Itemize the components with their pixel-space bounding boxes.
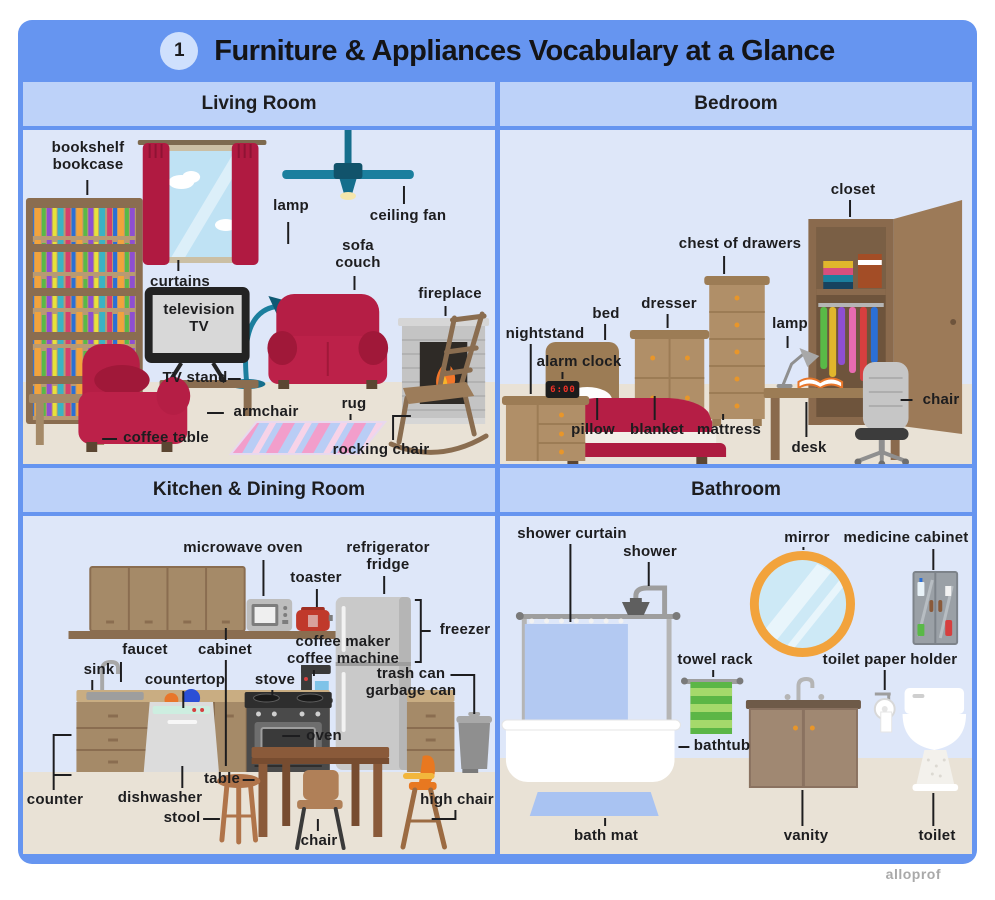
- label-nightstand: nightstand: [506, 326, 585, 343]
- label-rug: rug: [342, 396, 367, 413]
- label-vanity: vanity: [784, 828, 829, 845]
- label-freezer: freezer: [440, 622, 491, 639]
- page-title: Furniture & Appliances Vocabulary at a G…: [214, 35, 835, 68]
- label-curtains: curtains: [150, 274, 210, 291]
- label-mirror: mirror: [784, 530, 829, 547]
- label-sink: sink: [84, 662, 115, 679]
- label-bookshelf-bookcase: bookshelf bookcase: [52, 140, 125, 174]
- label-lamp: lamp: [273, 198, 309, 215]
- label-toilet: toilet: [918, 828, 955, 845]
- title-bar: 1 Furniture & Appliances Vocabulary at a…: [18, 20, 977, 82]
- label-oven: oven: [306, 728, 342, 745]
- label-pillow: pillow: [571, 422, 615, 439]
- number-badge: 1: [160, 32, 198, 70]
- label-trash-can: trash can garbage can: [366, 666, 457, 700]
- label-alarm-clock: alarm clock: [537, 354, 622, 371]
- label-bathtub: bathtub: [694, 738, 750, 755]
- label-blanket: blanket: [630, 422, 684, 439]
- label-dresser: dresser: [641, 296, 697, 313]
- label-chair: chair: [923, 392, 960, 409]
- living-room-panel: bookshelf bookcasecurtainslampceiling fa…: [23, 130, 495, 464]
- bathroom-panel: shower curtainshowermirrormedicine cabin…: [500, 516, 972, 854]
- rooms-grid: Living Room Bedroom: [23, 82, 972, 854]
- label-desk: desk: [792, 440, 827, 457]
- label-bed: bed: [592, 306, 619, 323]
- label-sofa-couch: sofa couch: [335, 238, 380, 272]
- section-header-kitchen: Kitchen & Dining Room: [23, 468, 495, 512]
- section-header-bathroom: Bathroom: [500, 468, 972, 512]
- label-refrigerator-fridge: refrigerator fridge: [346, 540, 429, 574]
- section-header-living-room: Living Room: [23, 82, 495, 126]
- alloprof-logo: alloprof: [886, 866, 941, 882]
- label-lamp: lamp: [772, 316, 808, 333]
- label-chest-of-drawers: chest of drawers: [679, 236, 801, 253]
- label-toaster: toaster: [290, 570, 341, 587]
- label-stove: stove: [255, 672, 295, 689]
- label-fireplace: fireplace: [418, 286, 482, 303]
- label-mattress: mattress: [697, 422, 761, 439]
- alarm-clock-time: 6:00: [550, 385, 576, 395]
- vocab-card: 1 Furniture & Appliances Vocabulary at a…: [18, 20, 977, 864]
- label-faucet: faucet: [122, 642, 167, 659]
- label-rocking-chair: rocking chair: [333, 442, 430, 459]
- label-counter: counter: [27, 792, 83, 809]
- label-shower: shower: [623, 544, 677, 561]
- living-room-labels: bookshelf bookcasecurtainslampceiling fa…: [23, 130, 495, 464]
- label-armchair: armchair: [234, 404, 299, 421]
- label-tv-stand: TV stand: [163, 370, 228, 387]
- label-coffee-table: coffee table: [123, 430, 209, 447]
- label-countertop: countertop: [145, 672, 225, 689]
- label-coffee-maker: coffee maker coffee machine: [287, 634, 399, 668]
- bathroom-labels: shower curtainshowermirrormedicine cabin…: [500, 516, 972, 854]
- bedroom-panel: closetchest of drawersdresserbednightsta…: [500, 130, 972, 464]
- label-microwave-oven: microwave oven: [183, 540, 303, 557]
- label-medicine-cabinet: medicine cabinet: [844, 530, 969, 547]
- section-header-bedroom: Bedroom: [500, 82, 972, 126]
- label-bath-mat: bath mat: [574, 828, 638, 845]
- label-television-tv: television TV: [163, 302, 234, 336]
- bedroom-labels: closetchest of drawersdresserbednightsta…: [500, 130, 972, 464]
- kitchen-labels: microwave oventoasterrefrigerator fridge…: [23, 516, 495, 854]
- label-shower-curtain: shower curtain: [517, 526, 627, 543]
- label-dishwasher: dishwasher: [118, 790, 203, 807]
- kitchen-panel: microwave oventoasterrefrigerator fridge…: [23, 516, 495, 854]
- label-chair: chair: [301, 833, 338, 850]
- label-cabinet: cabinet: [198, 642, 252, 659]
- label-stool: stool: [164, 810, 201, 827]
- label-table: table: [204, 771, 240, 788]
- label-ceiling-fan: ceiling fan: [370, 208, 446, 225]
- label-high-chair: high chair: [420, 792, 494, 809]
- label-towel-rack: towel rack: [677, 652, 752, 669]
- label-toilet-paper-holder: toilet paper holder: [823, 652, 958, 669]
- label-closet: closet: [831, 182, 876, 199]
